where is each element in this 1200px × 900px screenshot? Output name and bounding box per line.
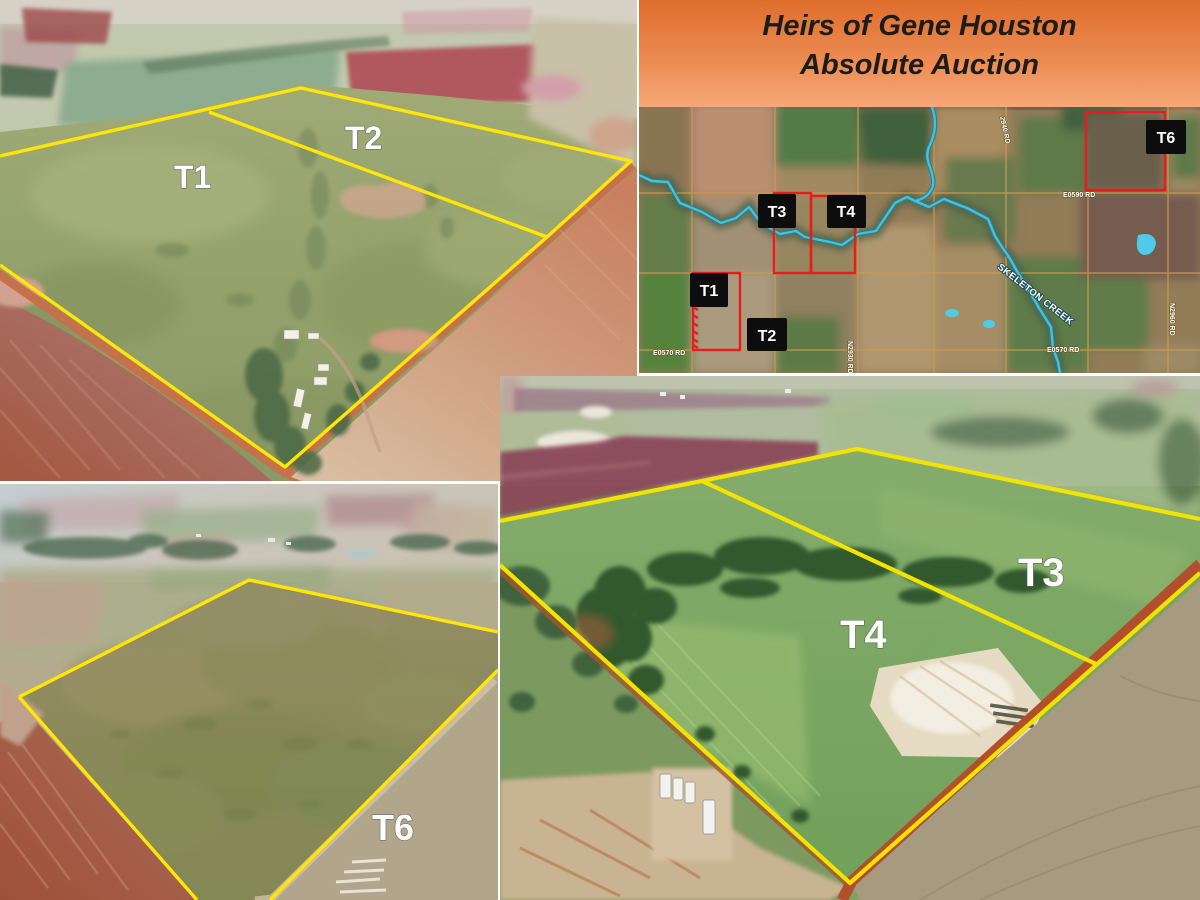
svg-text:E0570 RD: E0570 RD bbox=[653, 350, 685, 357]
svg-text:T2: T2 bbox=[345, 120, 382, 156]
svg-text:T6: T6 bbox=[372, 807, 414, 848]
svg-text:E0570 RD: E0570 RD bbox=[1047, 347, 1079, 354]
svg-text:T4: T4 bbox=[840, 613, 887, 657]
svg-text:T4: T4 bbox=[837, 204, 856, 221]
svg-text:T1: T1 bbox=[174, 159, 211, 195]
svg-text:N2930 RD: N2930 RD bbox=[846, 341, 853, 373]
svg-text:T1: T1 bbox=[700, 283, 719, 300]
svg-text:E0590 RD: E0590 RD bbox=[1063, 192, 1095, 199]
svg-text:T3: T3 bbox=[768, 204, 787, 221]
svg-text:T6: T6 bbox=[1157, 130, 1176, 147]
svg-text:T2: T2 bbox=[758, 328, 777, 345]
svg-text:T3: T3 bbox=[1018, 551, 1065, 595]
svg-text:N2960 RD: N2960 RD bbox=[1168, 303, 1175, 336]
